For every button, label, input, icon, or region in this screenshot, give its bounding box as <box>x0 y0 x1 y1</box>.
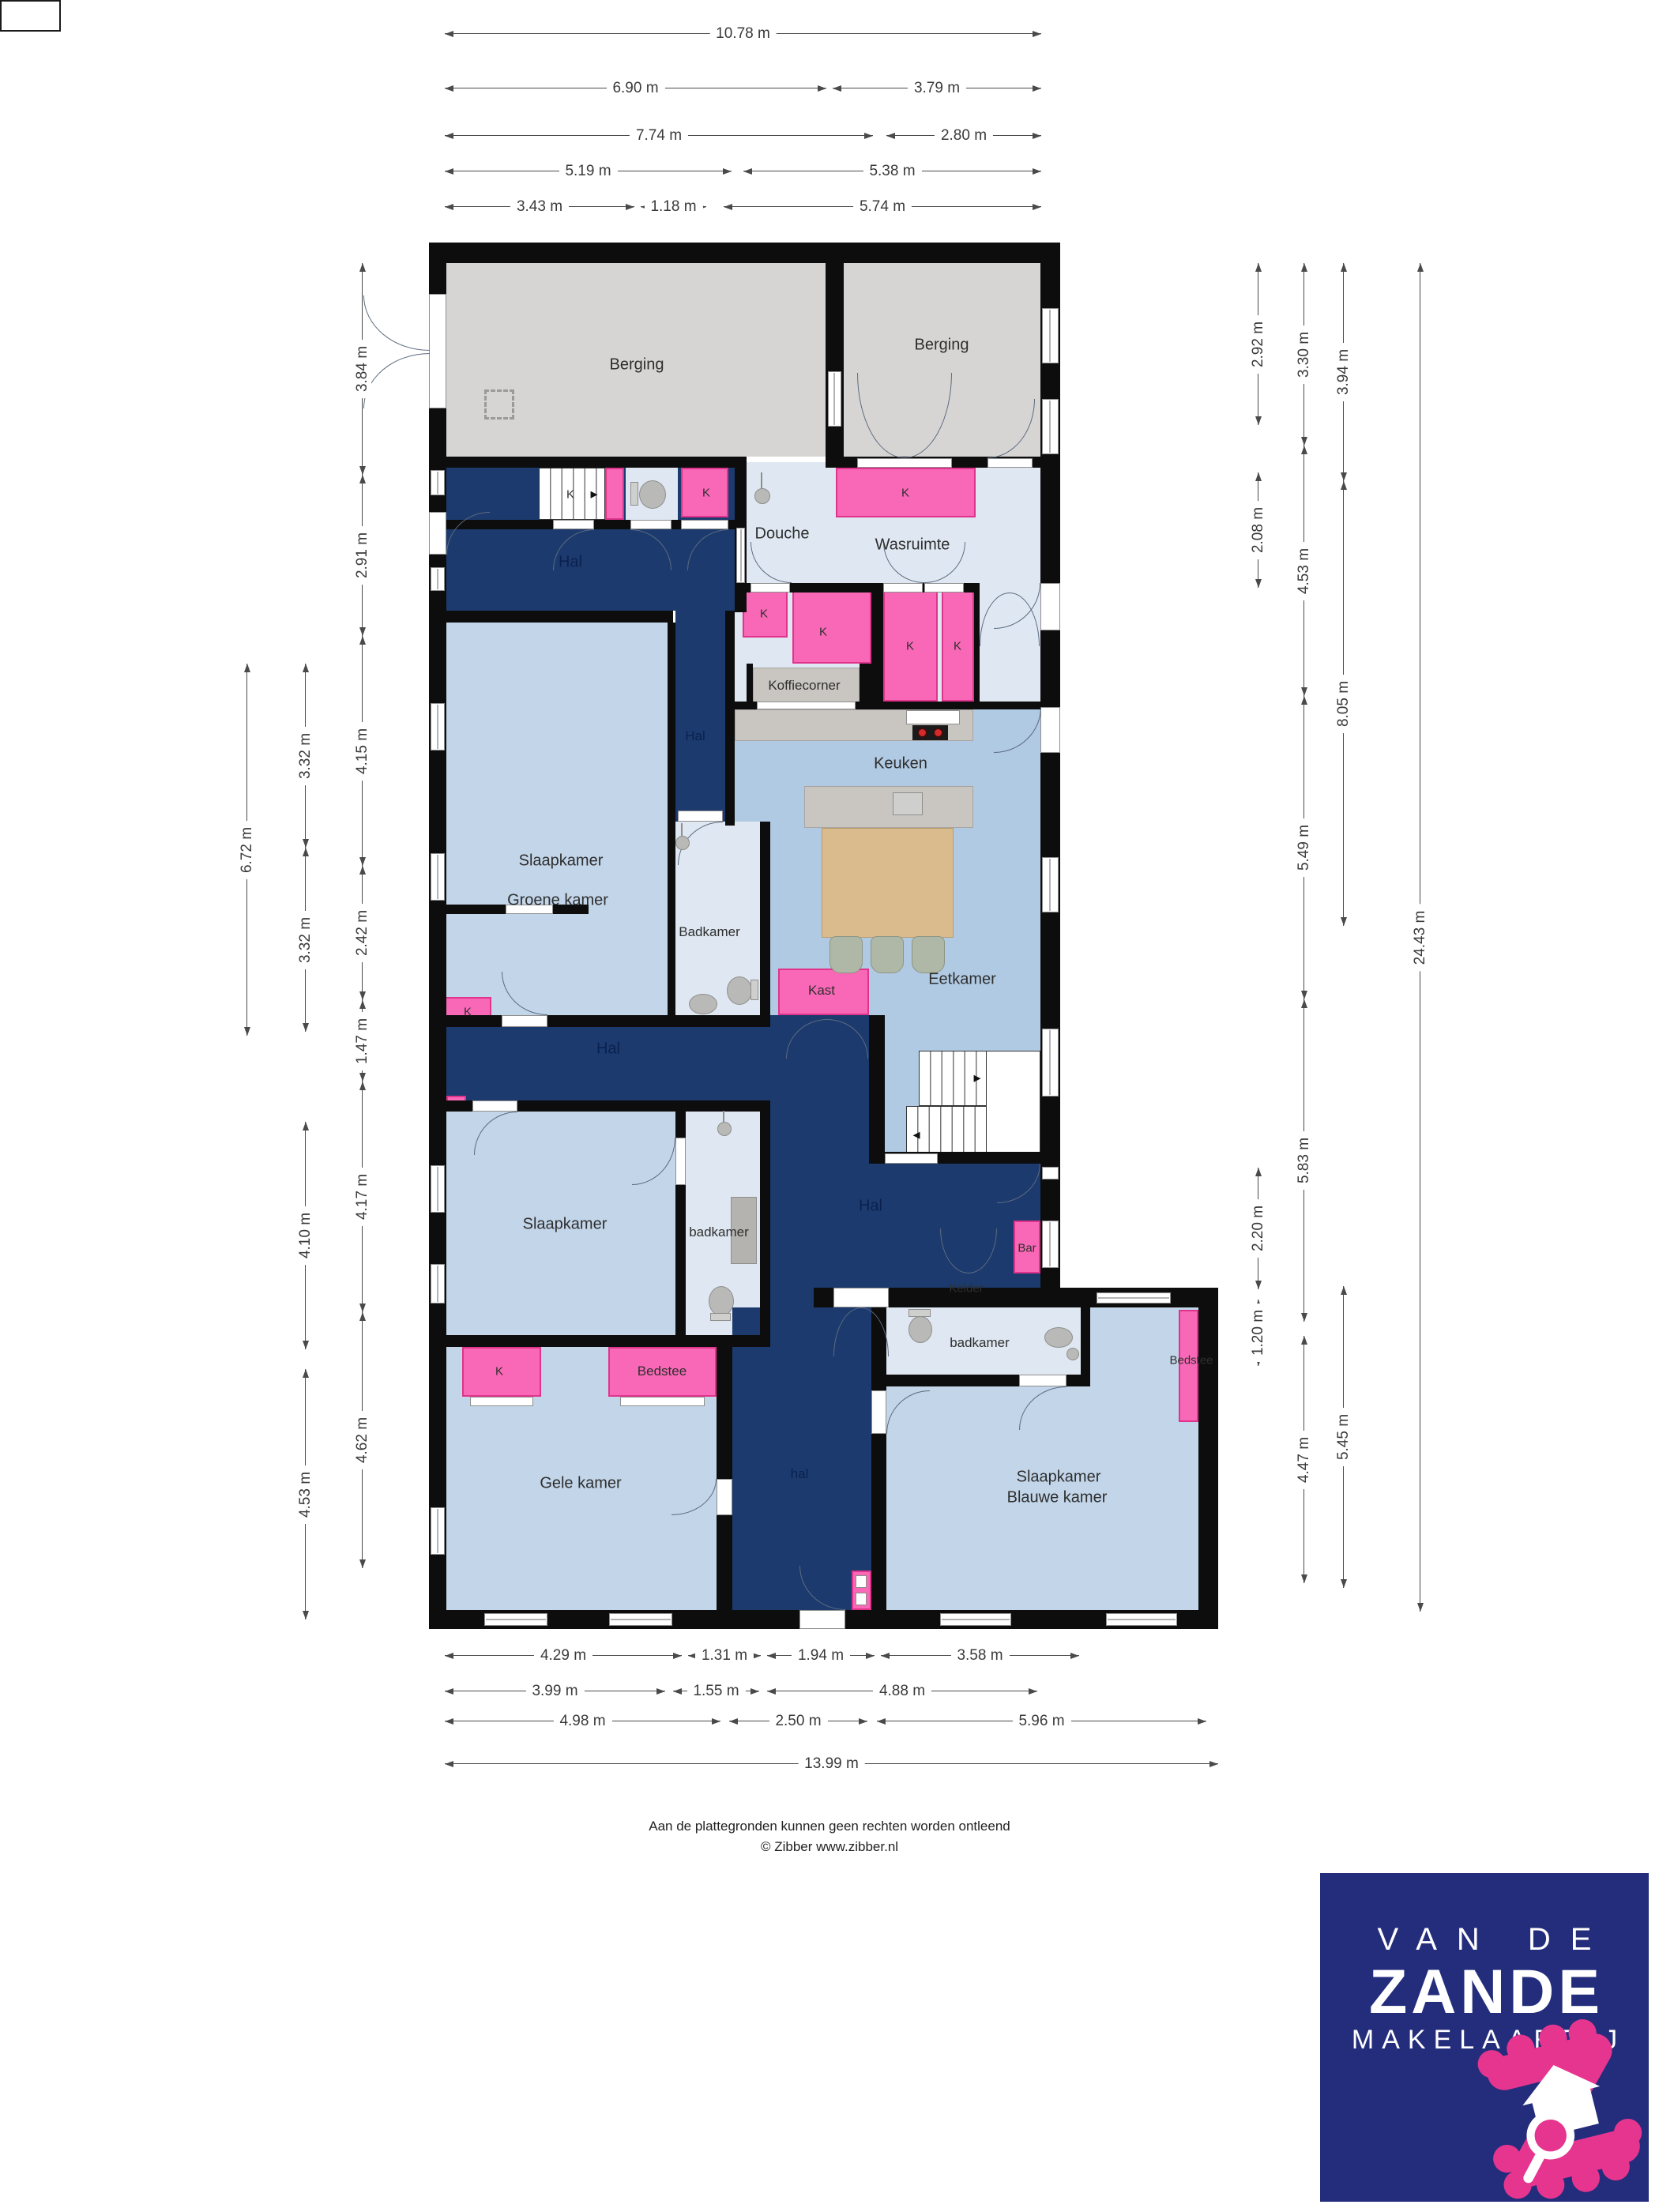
label-badkamer-top: Badkamer <box>679 924 739 940</box>
window-bottom-4 <box>1106 1613 1177 1626</box>
door-stairrow-3 <box>681 520 728 529</box>
wall-kast-east <box>869 1015 885 1164</box>
dim-bot-4-98: 4.98 m <box>445 1721 720 1721</box>
shower-stem-douche <box>761 472 762 488</box>
label-k-douche1: K <box>760 608 768 621</box>
label-keuken: Keuken <box>874 755 927 773</box>
wall-closet-row-left <box>871 583 883 707</box>
stairs-arrow-left: ◄ <box>911 1129 923 1142</box>
door-badright <box>1019 1375 1066 1386</box>
shower-stem-badmid <box>723 1111 724 1122</box>
label-k-tophal: K <box>702 487 710 500</box>
island-sink <box>893 792 923 815</box>
dim-left-3-32b: 3.32 m <box>305 848 306 1032</box>
dim-bot-1-31: 1.31 m <box>688 1655 761 1656</box>
dim-bot-1-94: 1.94 m <box>767 1655 875 1656</box>
label-k-wasruimte2: K <box>954 640 961 653</box>
door-halmid-slaapkamer <box>472 1100 517 1112</box>
toilet-badmid-bowl <box>709 1286 734 1316</box>
door-bottom-hal <box>799 1610 845 1629</box>
wall-badmid-right <box>760 1112 770 1335</box>
berging-post-hatch <box>484 389 514 419</box>
window-right-3 <box>1042 857 1059 912</box>
wall-badright-stub <box>1081 1307 1090 1386</box>
label-groene-2: Groene kamer <box>507 892 608 910</box>
wall-koffie-right <box>860 664 871 709</box>
dim-top-2-80: 2.80 m <box>886 135 1041 136</box>
dining-chair-1 <box>829 936 863 973</box>
door-hal-blauwe <box>871 1390 886 1434</box>
door-corridor-badkamer <box>678 811 723 822</box>
dining-chair-3 <box>912 936 945 973</box>
label-k-halmid: K <box>464 1006 472 1019</box>
window-left-2 <box>431 567 445 591</box>
door-berging-right-east <box>987 458 1033 468</box>
label-bedstee-left: Bedstee <box>638 1364 687 1379</box>
dim-right-5-83: 5.83 m <box>1303 999 1304 1322</box>
dim-top-3-79: 3.79 m <box>833 88 1041 88</box>
label-kast: Kast <box>808 983 835 999</box>
window-left-7 <box>431 1507 445 1555</box>
kelder-box <box>0 0 61 32</box>
dim-left-3-84: 3.84 m <box>362 263 363 475</box>
door-badmid <box>675 1138 686 1185</box>
dim-left-2-91: 2.91 m <box>362 475 363 636</box>
dim-top-5-74: 5.74 m <box>724 206 1041 207</box>
toilet-badtop-bowl <box>727 976 752 1005</box>
dim-left-4-17: 4.17 m <box>362 1082 363 1312</box>
sink-badright <box>1044 1327 1073 1348</box>
window-stairs-bottom <box>885 1153 938 1164</box>
dim-left-4-53: 4.53 m <box>305 1369 306 1619</box>
label-hal-corridor: Hal <box>685 728 705 744</box>
window-left-3 <box>431 703 445 750</box>
dining-chair-2 <box>871 936 904 973</box>
dim-top-5-38: 5.38 m <box>743 171 1041 171</box>
shower-head-badmid <box>717 1122 732 1136</box>
dim-right-1-20: 1.20 m <box>1258 1300 1258 1366</box>
window-left-1 <box>431 470 445 495</box>
toilet-badtop-tank <box>750 980 758 1000</box>
label-blauwe-2: Blauwe kamer <box>1007 1489 1108 1507</box>
dim-left-4-15: 4.15 m <box>362 636 363 866</box>
dim-top-1-18: 1.18 m <box>641 206 706 207</box>
label-wasruimte: Wasruimte <box>875 536 950 555</box>
closet-douche-2 <box>792 591 871 664</box>
dim-bot-2-50: 2.50 m <box>729 1721 867 1721</box>
label-gele-kamer: Gele kamer <box>540 1475 621 1493</box>
logo-line-van-de: VAN DE <box>1358 1922 1612 1958</box>
toilet-top-bowl <box>639 480 666 509</box>
dim-right-2-08: 2.08 m <box>1258 472 1258 588</box>
label-badkamer-mid: badkamer <box>689 1224 749 1240</box>
logo-z-house-icon <box>1461 2009 1659 2208</box>
window-right-5 <box>1042 1221 1059 1268</box>
wall-berging-left-bottom <box>429 457 747 468</box>
window-berging-divider <box>828 371 841 427</box>
shower-head-douche <box>754 488 770 504</box>
door-right-keuken <box>1040 707 1060 753</box>
label-hal-central: Hal <box>859 1198 882 1216</box>
shower-head-badright <box>1066 1348 1079 1360</box>
dim-right-4-53: 4.53 m <box>1303 446 1304 696</box>
label-eetkamer: Eetkamer <box>928 971 996 989</box>
label-badkamer-right: badkamer <box>950 1335 1010 1351</box>
stove-burner-1 <box>917 728 927 738</box>
room-groene-kamer <box>446 623 668 1015</box>
label-berging-right: Berging <box>915 337 969 355</box>
label-hal-top: Hal <box>559 554 582 572</box>
window-right-2 <box>1042 399 1059 454</box>
window-bottom-3 <box>940 1613 1011 1626</box>
vent-closet-gele <box>470 1397 533 1406</box>
footer-disclaimer: Aan de plattegronden kunnen geen rechten… <box>0 1819 1659 1834</box>
dim-right-3-94: 3.94 m <box>1343 263 1344 481</box>
label-koffiecorner: Koffiecorner <box>768 678 840 694</box>
dim-bot-13-99: 13.99 m <box>445 1763 1218 1764</box>
dim-right-5-49: 5.49 m <box>1303 696 1304 999</box>
dim-bot-4-29: 4.29 m <box>445 1655 682 1656</box>
label-blauwe-1: Slaapkamer <box>1017 1469 1101 1487</box>
room-hal-mid <box>443 1025 770 1100</box>
wall-closet-row-right <box>974 591 980 702</box>
dim-bot-4-88: 4.88 m <box>767 1691 1037 1691</box>
label-bar: Bar <box>1018 1242 1036 1255</box>
door-berging-right-south <box>857 458 952 468</box>
dim-top-10-78: 10.78 m <box>445 33 1041 34</box>
dim-right-5-45: 5.45 m <box>1343 1286 1344 1588</box>
label-bedstee-right: Bedstee <box>1169 1354 1213 1367</box>
wall-hal-top-bottom <box>429 611 673 623</box>
dim-right-8-05: 8.05 m <box>1343 481 1344 926</box>
label-hal-bottom: hal <box>791 1466 809 1482</box>
dim-top-7-74: 7.74 m <box>445 135 873 136</box>
fixture-bottom <box>856 1593 867 1605</box>
window-left-5 <box>431 1165 445 1213</box>
kitchen-island <box>804 786 973 828</box>
door-closetrow-2 <box>883 583 923 592</box>
kitchen-sink <box>906 710 960 724</box>
dim-left-3-32a: 3.32 m <box>305 664 306 848</box>
wall-top <box>429 243 1060 263</box>
wall-groene-bottom <box>429 1015 770 1027</box>
dim-bot-3-58: 3.58 m <box>881 1655 1079 1656</box>
hal-bottom-fixture <box>852 1571 871 1610</box>
dim-bot-5-96: 5.96 m <box>877 1721 1206 1721</box>
shower-head-badtop <box>675 836 690 850</box>
window-left-6 <box>431 1264 445 1303</box>
dim-right-2-92: 2.92 m <box>1258 263 1258 425</box>
window-hal-douche <box>736 528 745 583</box>
shower-stem-badtop <box>681 823 683 836</box>
dining-table <box>822 828 954 938</box>
vent-bedstee-left <box>620 1397 705 1406</box>
door-right-wasruimte <box>1040 583 1060 630</box>
wall-berging-divider <box>826 263 844 457</box>
dim-left-4-62: 4.62 m <box>362 1312 363 1568</box>
door-centralhal <box>833 1288 889 1307</box>
dim-top-5-19: 5.19 m <box>445 171 732 171</box>
label-douche: Douche <box>755 525 810 544</box>
window-bottom-2 <box>609 1613 672 1626</box>
koffiecorner-pass <box>757 702 856 709</box>
dim-bot-1-55: 1.55 m <box>673 1691 759 1691</box>
dim-right-4-47: 4.47 m <box>1303 1336 1304 1583</box>
dim-right-3-30: 3.30 m <box>1303 263 1304 446</box>
floorplan-page: ► ► ◄ <box>0 0 1659 2212</box>
dim-top-3-43: 3.43 m <box>445 206 634 207</box>
label-slaapkamer-mid: Slaapkamer <box>523 1216 608 1234</box>
wall-koffie-left <box>747 664 753 709</box>
door-closetrow-1 <box>750 583 790 592</box>
stairs-top-arrow: ► <box>589 488 600 502</box>
dim-left-2-42: 2.42 m <box>362 866 363 1000</box>
wall-row2-bottom <box>429 1335 770 1347</box>
door-right-hal <box>1042 1167 1059 1179</box>
door-berging-left <box>429 294 446 408</box>
door-left-hal <box>429 512 446 555</box>
vandezande-logo: VAN DE ZANDE MAKELAARDIJ <box>1320 1873 1649 2202</box>
wall-corridor-left <box>668 623 675 822</box>
window-bump-top <box>1097 1292 1171 1303</box>
room-hal-corridor <box>675 611 725 822</box>
window-bottom-1 <box>484 1613 547 1626</box>
door-stairrow-1 <box>553 520 594 529</box>
door-stairrow-2 <box>630 520 671 529</box>
fixture-top <box>856 1575 867 1588</box>
label-k-wasruimte1: K <box>906 640 914 653</box>
label-kelder: Kelder <box>949 1282 983 1296</box>
dim-left-4-10: 4.10 m <box>305 1122 306 1349</box>
wall-bump-right <box>1198 1288 1218 1629</box>
dim-right-2-20: 2.20 m <box>1258 1168 1258 1289</box>
toilet-badmid-tank <box>710 1313 731 1321</box>
label-k-berging: K <box>901 487 909 500</box>
dim-top-6-90: 6.90 m <box>445 88 826 88</box>
label-berging-left: Berging <box>610 356 664 374</box>
sink-badtop <box>689 994 717 1014</box>
label-k-douche2: K <box>819 626 827 639</box>
stairs-eetkamer-landing <box>986 1051 1040 1164</box>
wall-left <box>429 243 446 1629</box>
label-groene-1: Slaapkamer <box>519 852 604 871</box>
closet-stair-sliver <box>605 468 624 520</box>
wall-badkamer-top-right <box>760 822 770 1025</box>
toilet-top-tank <box>630 482 638 506</box>
door-arc-berging-1 <box>363 295 430 351</box>
stairs-arrow-right: ► <box>972 1072 984 1085</box>
dim-left-1-47: 1.47 m <box>362 1000 363 1082</box>
door-closetrow-3 <box>924 583 964 592</box>
dim-bot-3-99: 3.99 m <box>445 1691 665 1691</box>
footer-copyright: © Zibber www.zibber.nl <box>0 1839 1659 1855</box>
label-hal-mid: Hal <box>596 1040 620 1059</box>
window-right-1 <box>1042 308 1059 363</box>
toilet-badright-bowl <box>908 1316 932 1343</box>
dim-left-6-72: 6.72 m <box>246 664 247 1036</box>
label-k-gele: K <box>495 1365 503 1379</box>
door-groene-bottom <box>502 1015 547 1027</box>
dim-right-24-43: 24.43 m <box>1420 263 1420 1612</box>
label-k-stairs: K <box>566 488 574 502</box>
wall-corridor-right <box>725 611 735 826</box>
window-left-4 <box>431 853 445 901</box>
stove-burner-2 <box>933 728 943 738</box>
door-arc-berging-2 <box>363 353 430 408</box>
window-right-4 <box>1042 1029 1059 1097</box>
door-gele <box>717 1479 732 1515</box>
wall-badkamer-top-left <box>668 822 675 1018</box>
